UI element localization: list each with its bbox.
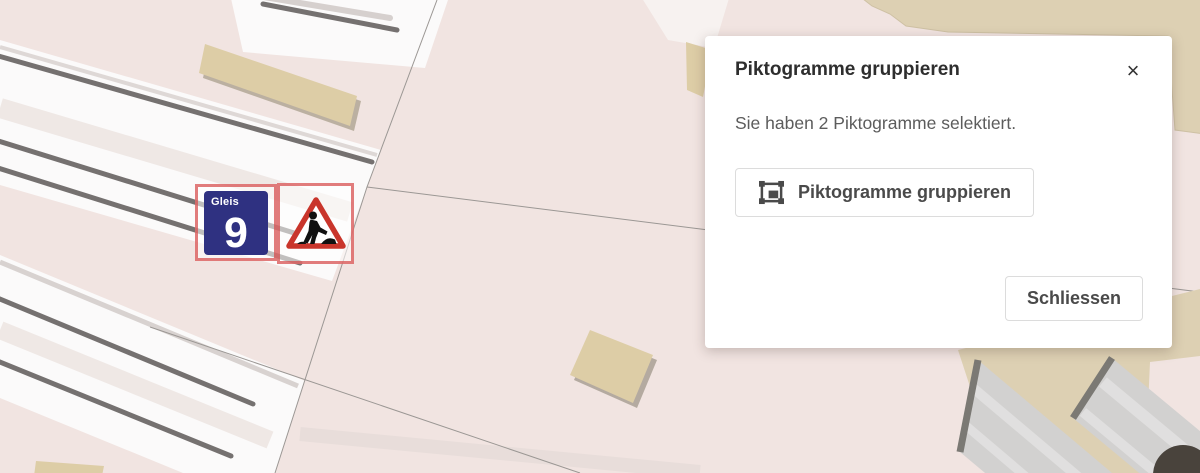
schliessen-button[interactable]: Schliessen bbox=[1005, 276, 1143, 321]
pictogram-track-9[interactable]: Gleis 9 bbox=[195, 184, 277, 261]
dialog-title: Piktogramme gruppieren bbox=[735, 58, 1143, 82]
building-sliver bbox=[34, 461, 104, 473]
close-icon[interactable]: × bbox=[1118, 56, 1148, 86]
pictogram-construction[interactable] bbox=[277, 183, 354, 264]
track-band-top bbox=[230, 0, 450, 68]
platform-sign-word: Gleis bbox=[211, 196, 239, 208]
group-pictograms-dialog: Piktogramme gruppieren × Sie haben 2 Pik… bbox=[705, 36, 1172, 348]
selection-message: Sie haben 2 Piktogramme selektiert. bbox=[735, 112, 1143, 135]
map-editor-screen: Gleis 9 Piktogramme gruppieren × Sie hab… bbox=[0, 0, 1200, 473]
construction-warning-icon bbox=[284, 195, 348, 253]
platform-sign: Gleis 9 bbox=[204, 191, 268, 255]
platform-sign-number: 9 bbox=[204, 212, 268, 255]
group-pictograms-button[interactable]: Piktogramme gruppieren bbox=[735, 168, 1034, 217]
group-button-label: Piktogramme gruppieren bbox=[798, 182, 1011, 203]
building-small bbox=[570, 330, 657, 408]
object-group-icon bbox=[758, 180, 785, 205]
